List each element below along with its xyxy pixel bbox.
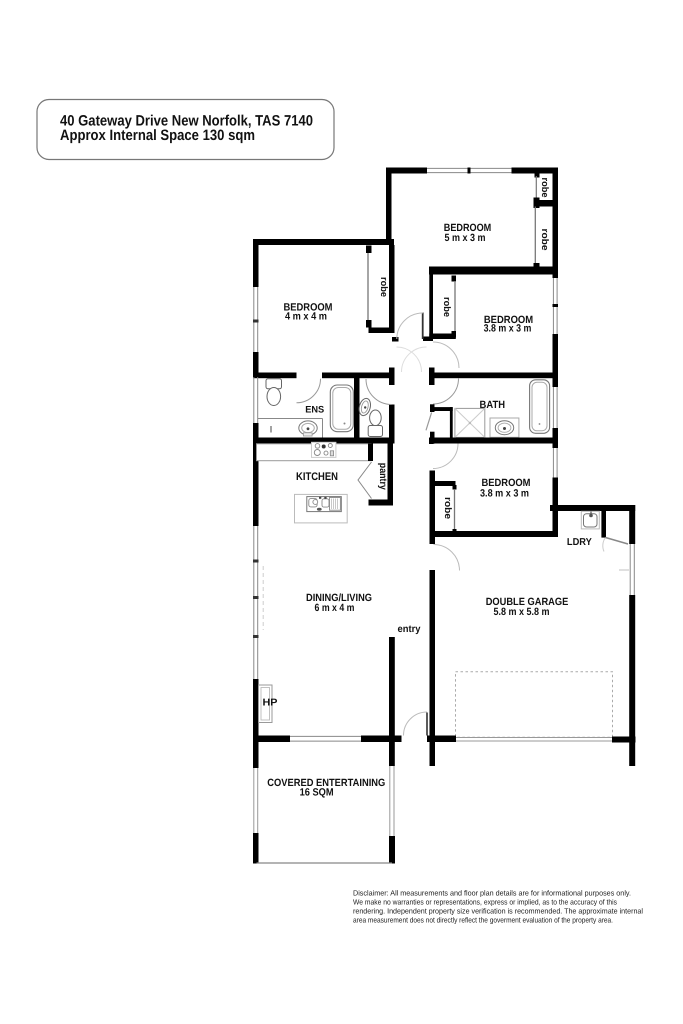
- svg-text:16 SQM: 16 SQM: [300, 787, 334, 799]
- svg-text:3.8 m x 3 m: 3.8 m x 3 m: [480, 488, 529, 500]
- svg-text:We make no warranties or repr: We make no warranties or representations…: [353, 898, 617, 907]
- svg-text:HP: HP: [263, 698, 278, 709]
- svg-text:LDRY: LDRY: [567, 537, 592, 548]
- svg-text:ENS: ENS: [305, 404, 324, 415]
- svg-text:3.8 m x 3 m: 3.8 m x 3 m: [484, 323, 532, 335]
- svg-text:Disclaimer: All measurements a: Disclaimer: All measurements and floor p…: [353, 889, 631, 898]
- svg-text:robe: robe: [378, 277, 389, 297]
- svg-text:rendering. Independent propert: rendering. Independent property size ver…: [353, 907, 643, 916]
- svg-text:6 m x 4 m: 6 m x 4 m: [315, 602, 355, 614]
- svg-text:area measurement does not dire: area measurement does not directly refle…: [353, 916, 613, 925]
- svg-text:4 m x 4 m: 4 m x 4 m: [285, 311, 327, 323]
- svg-text:KITCHEN: KITCHEN: [296, 471, 338, 483]
- svg-text:5 m x 3 m: 5 m x 3 m: [445, 232, 486, 244]
- svg-text:robe: robe: [442, 497, 453, 519]
- svg-text:Approx Internal Space 130 sqm: Approx Internal Space 130 sqm: [60, 127, 255, 144]
- svg-text:robe: robe: [539, 178, 550, 198]
- svg-text:robe: robe: [441, 297, 452, 317]
- svg-text:5.8 m x 5.8 m: 5.8 m x 5.8 m: [494, 606, 550, 618]
- svg-text:robe: robe: [539, 229, 550, 251]
- svg-text:entry: entry: [398, 624, 421, 635]
- svg-text:pantry: pantry: [377, 463, 388, 490]
